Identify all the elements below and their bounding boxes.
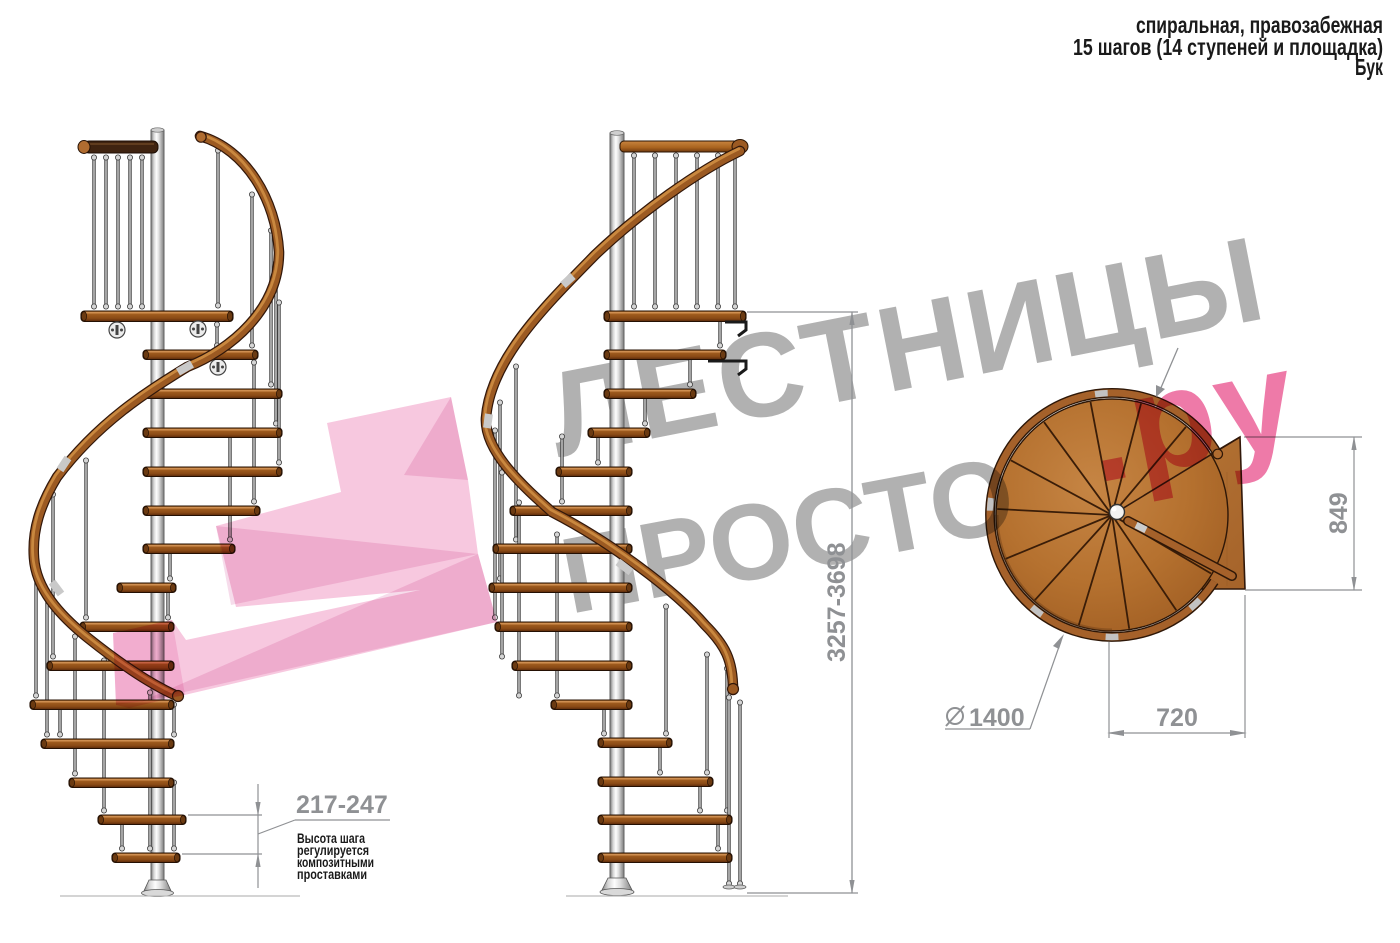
svg-text:15 шагов (14 ступеней и площад: 15 шагов (14 ступеней и площадка) <box>1073 34 1383 60</box>
svg-text:1400: 1400 <box>969 704 1025 732</box>
svg-text:3257-3698: 3257-3698 <box>823 542 851 662</box>
svg-text:Бук: Бук <box>1355 54 1383 80</box>
svg-text:720: 720 <box>1156 704 1198 732</box>
svg-text:849: 849 <box>1325 492 1353 534</box>
svg-text:217-247: 217-247 <box>296 791 388 819</box>
svg-text:проставками: проставками <box>297 867 367 882</box>
